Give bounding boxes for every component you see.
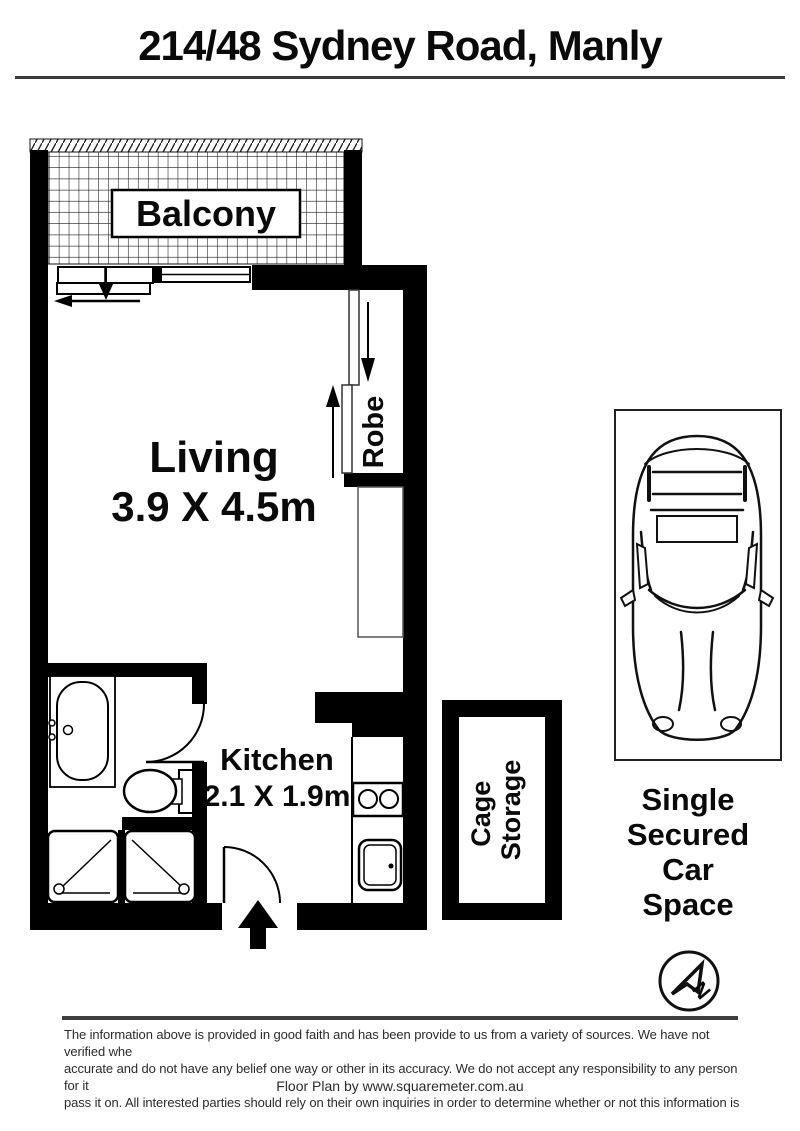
wall — [30, 150, 48, 265]
balcony-label: Balcony — [136, 193, 276, 234]
kitchen-sink — [359, 840, 401, 890]
car-space-line3: Car — [662, 852, 714, 887]
wall — [122, 817, 207, 830]
car-space-line4: Space — [642, 887, 733, 922]
entry-door — [224, 847, 280, 903]
entry-arrow-icon — [238, 900, 278, 949]
wall — [352, 698, 405, 737]
shower-tray-left — [48, 831, 118, 902]
wall-left — [30, 263, 48, 930]
cage-storage: Cage Storage — [442, 700, 562, 920]
cage-storage-line1: Cage — [466, 781, 496, 847]
bathtub — [49, 676, 115, 787]
footer-divider-rule — [62, 1016, 738, 1020]
north-compass-icon: N — [660, 952, 718, 1010]
car-space-line2: Secured — [627, 817, 749, 852]
living-room: Living 3.9 X 4.5m — [111, 433, 316, 530]
living-label: Living — [149, 433, 279, 482]
wall-top — [252, 265, 427, 290]
car-space: Single Secured Car Space — [615, 410, 781, 922]
wall-bottom-right — [297, 903, 427, 930]
cupboard — [358, 487, 403, 637]
wall-right — [403, 265, 427, 930]
robe-sliding-track-lower — [342, 385, 352, 473]
car-space-caption: Single Secured Car Space — [627, 782, 749, 922]
robe-label: Robe — [358, 396, 390, 469]
balcony-hatch-strip — [30, 139, 362, 152]
cage-storage-line2: Storage — [496, 760, 526, 861]
kitchen-dimensions: 2.1 X 1.9m — [204, 780, 351, 813]
car-top-view-icon — [621, 436, 773, 740]
balcony-room: Balcony — [30, 139, 362, 265]
cage-storage-label: Cage Storage — [466, 760, 526, 861]
disclaimer-text: The information above is provided in goo… — [64, 1026, 740, 1111]
kitchen: Kitchen 2.1 X 1.9m — [204, 692, 427, 903]
living-dimensions: 3.9 X 4.5m — [111, 483, 316, 530]
wall — [344, 473, 427, 487]
cooktop — [353, 783, 403, 816]
toilet — [124, 770, 193, 813]
floor-plan-svg: Balcony Living 3.9 X 4.5m — [0, 0, 800, 1131]
wall — [344, 150, 362, 265]
balcony-sliding-door — [54, 266, 250, 307]
wall — [30, 663, 207, 677]
disclaimer-line1: The information above is provided in goo… — [64, 1026, 740, 1060]
robe-sliding-track-upper — [349, 290, 359, 385]
wall — [192, 677, 207, 704]
floorplan-credit: Floor Plan by www.squaremeter.com.au — [0, 1078, 800, 1094]
kitchen-label: Kitchen — [220, 742, 334, 777]
car-space-line1: Single — [641, 782, 734, 817]
shower-tray-right — [125, 831, 195, 902]
bathroom — [30, 663, 207, 903]
disclaimer-line3: pass it on. All interested parties shoul… — [64, 1094, 740, 1111]
bathroom-door — [146, 704, 204, 762]
wall-bottom-left — [30, 903, 222, 930]
